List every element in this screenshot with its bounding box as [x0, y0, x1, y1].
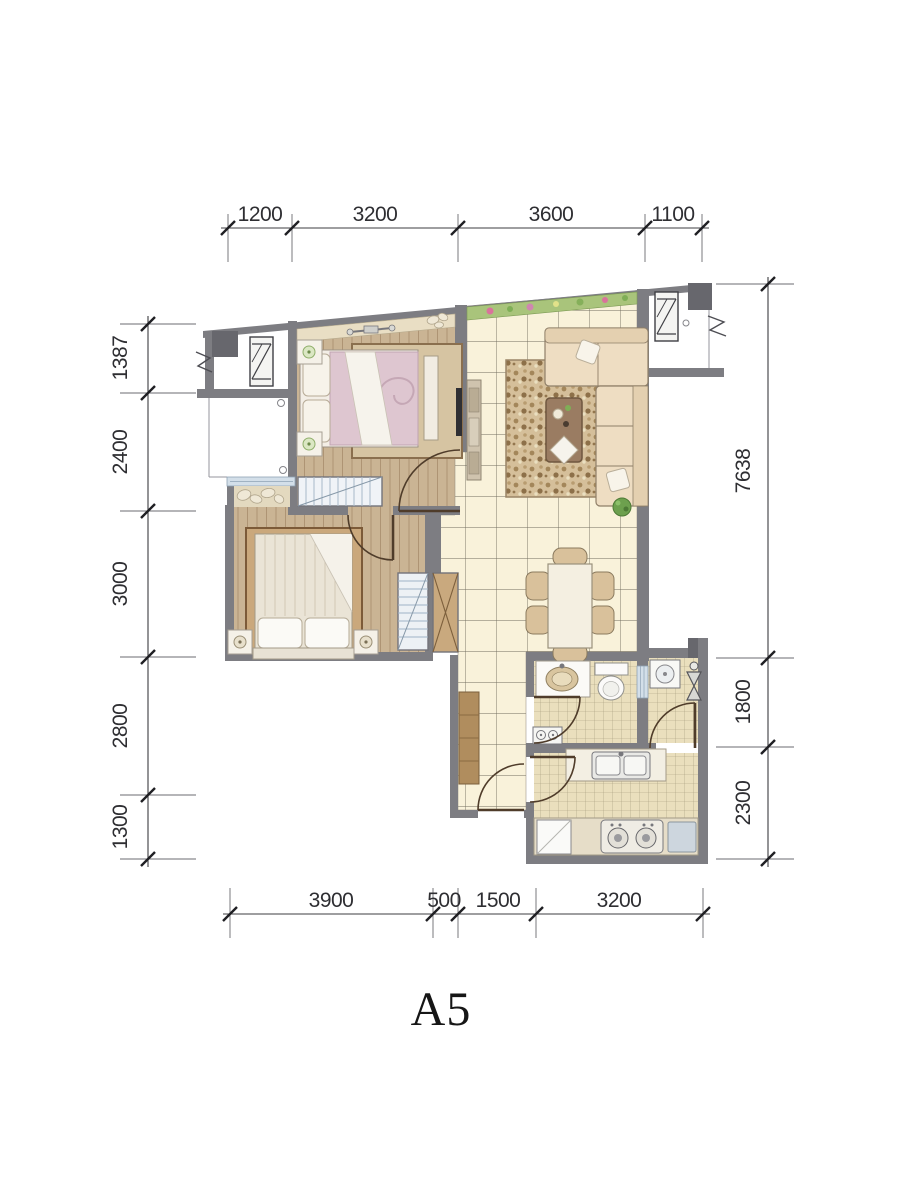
dimension-label: 1100 — [651, 203, 694, 226]
dining-chair-icon — [590, 572, 614, 600]
stove-icon — [601, 820, 663, 853]
dining-table-icon — [548, 564, 592, 648]
washing-machine-icon — [650, 660, 680, 688]
niche-back-wall — [433, 515, 441, 573]
dimension-label: 1300 — [109, 805, 132, 850]
dimension-left: 1387 2400 3000 2800 1300 — [109, 316, 196, 867]
floor-plan-page: 1200 3200 3600 1100 3900 500 1500 3200 — [0, 0, 900, 1200]
drain-icon — [683, 320, 689, 326]
island-sink-icon — [566, 749, 666, 781]
dimension-label: 2300 — [732, 781, 755, 826]
dining-chair-icon — [526, 572, 550, 600]
nightstand-icon — [297, 432, 322, 456]
kitchen-left-wall-b — [526, 802, 534, 855]
plant-icon — [613, 498, 631, 516]
plan-label: A5 — [411, 983, 472, 1036]
corridor-left-wall — [450, 655, 458, 818]
dimension-label: 1387 — [109, 336, 132, 381]
nightstand-icon — [297, 340, 322, 364]
coffee-table-icon — [546, 398, 582, 464]
kitchen-bottom-wall — [526, 855, 708, 864]
dimension-label: 3200 — [597, 889, 642, 912]
bed-icon — [253, 534, 354, 659]
dimension-label: 7638 — [732, 449, 755, 494]
bedroom-shared-wall-a — [288, 506, 348, 515]
ac-unit-icon-left — [250, 337, 273, 386]
dining-chair-icon — [590, 606, 614, 634]
dimension-label: 3200 — [353, 203, 398, 226]
column-top-left — [212, 331, 238, 357]
bay-window — [227, 477, 295, 507]
dimension-label: 500 — [427, 889, 461, 912]
fridge-icon — [668, 822, 696, 852]
break-line-icon-right — [708, 316, 726, 336]
cabinet-icon — [537, 820, 571, 854]
ac-unit-icon-right — [655, 292, 678, 341]
column-top-right — [688, 283, 712, 310]
kitchen-left-wall-a — [526, 743, 534, 757]
corridor-bottom-wall-a — [450, 810, 478, 818]
dimension-bottom: 3900 500 1500 3200 — [223, 888, 710, 938]
nightstand-icon — [228, 630, 252, 654]
dimension-top: 1200 3200 3600 1100 — [221, 203, 709, 262]
dining-chair-icon — [553, 548, 587, 566]
ac-platform-bottom-wall — [649, 368, 724, 377]
drain-icon — [280, 467, 287, 474]
dimension-label: 2800 — [109, 704, 132, 749]
bathroom-window — [637, 666, 648, 698]
vanity-sink-icon — [536, 661, 590, 697]
tv-icon — [456, 388, 462, 436]
wardrobe-icon — [398, 573, 428, 650]
nightstand-icon — [354, 630, 378, 654]
floor-plan-drawing: 1200 3200 3600 1100 3900 500 1500 3200 — [0, 0, 900, 1200]
balcony-bottom-wall — [197, 389, 297, 398]
dining-chair-icon — [526, 606, 550, 634]
dimension-label: 1800 — [732, 680, 755, 725]
dimension-label: 3900 — [309, 889, 354, 912]
dimension-label: 1200 — [238, 203, 283, 226]
dimension-right: 7638 1800 2300 — [716, 277, 794, 867]
dimension-label: 1500 — [476, 889, 521, 912]
dimension-label: 3000 — [109, 562, 132, 607]
dimension-label: 2400 — [109, 430, 132, 475]
drain-icon — [278, 400, 285, 407]
dimension-label: 3600 — [529, 203, 574, 226]
closet-x-icon — [433, 573, 458, 652]
hallway-cabinet-icon — [459, 692, 479, 784]
wardrobe-icon — [298, 477, 382, 506]
